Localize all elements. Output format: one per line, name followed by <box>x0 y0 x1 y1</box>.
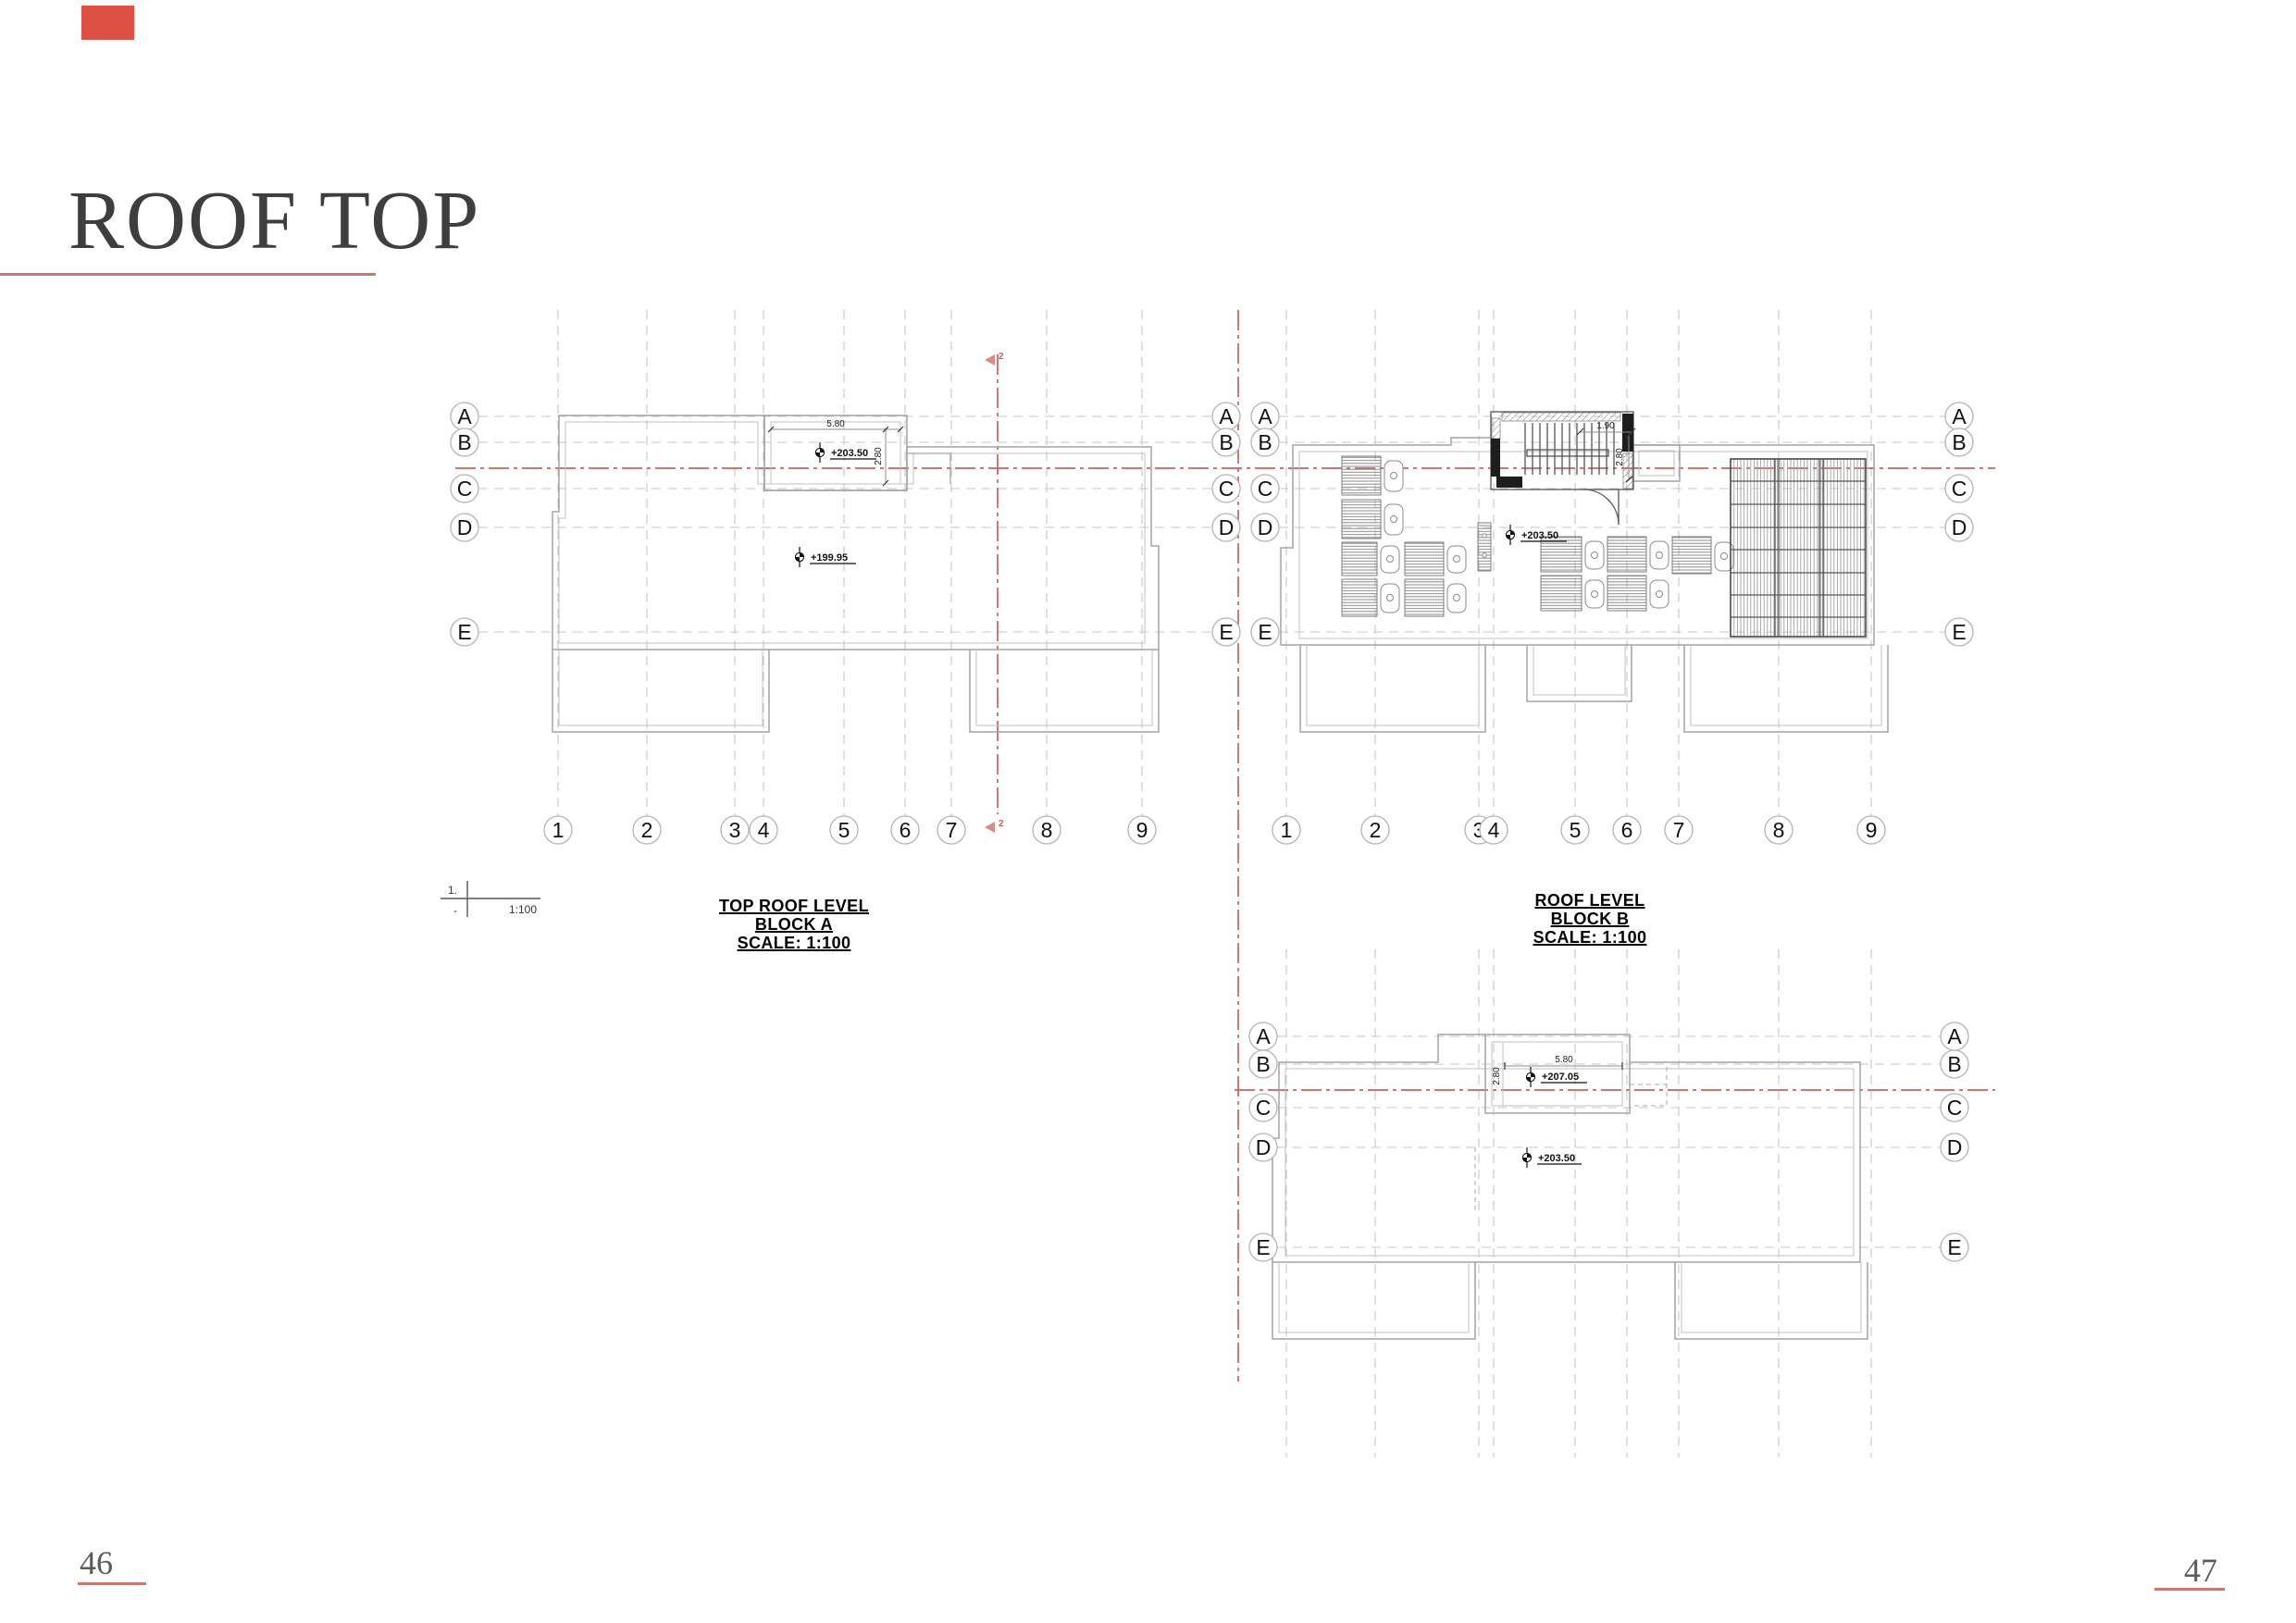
svg-text:6: 6 <box>900 818 912 842</box>
grid-bubble: 4 <box>750 816 777 844</box>
page-number-right: 47 <box>2184 1551 2217 1590</box>
dim-penthouse-depth-c: 2.80 <box>1492 1067 1502 1085</box>
grid-bubbles-block-a-right: A B C D E <box>1212 403 1240 646</box>
grid-bubble: C <box>1941 1094 1968 1121</box>
svg-text:7: 7 <box>1673 818 1685 842</box>
svg-text:E: E <box>1947 1235 1961 1259</box>
scale-denominator: - <box>453 904 457 917</box>
svg-text:A: A <box>1947 1024 1962 1048</box>
svg-text:E: E <box>1258 620 1272 644</box>
plan-a-title-line2: BLOCK A <box>719 915 869 934</box>
svg-text:+199.95: +199.95 <box>811 552 848 564</box>
grid-bubble: D <box>1249 1134 1277 1161</box>
svg-text:B: B <box>1952 430 1966 454</box>
grid-bubble: E <box>1941 1233 1968 1261</box>
svg-text:2: 2 <box>1370 818 1382 842</box>
grid-bubble: C <box>451 475 478 502</box>
door-swing <box>1583 489 1619 525</box>
grid-bubble: A <box>1212 403 1240 430</box>
grid-bubble: A <box>1251 403 1279 430</box>
grid-bubbles-block-c-right: A B C D E <box>1941 1022 1968 1261</box>
svg-text:C: C <box>1947 1096 1963 1120</box>
grid-bubble: C <box>1251 475 1279 502</box>
grid-bubble: D <box>451 514 478 541</box>
svg-text:E: E <box>1952 620 1966 644</box>
dim-penthouse-width-c: 5.80 <box>1555 1055 1573 1065</box>
svg-text:9: 9 <box>1136 818 1148 842</box>
svg-text:7: 7 <box>946 818 958 842</box>
svg-text:6: 6 <box>1621 818 1633 842</box>
grid-bubble: A <box>1945 403 1973 430</box>
svg-text:E: E <box>457 620 471 644</box>
svg-text:2: 2 <box>999 352 1004 362</box>
svg-text:2: 2 <box>999 819 1004 829</box>
svg-text:+203.50: +203.50 <box>1538 1153 1575 1164</box>
grid-bubble: D <box>1941 1134 1968 1161</box>
grid-bubble: E <box>1249 1233 1277 1261</box>
level-marker-penthouse-a: +203.50 <box>815 442 876 463</box>
grid-bubble: A <box>1941 1022 1968 1050</box>
grid-bubble: 7 <box>1665 816 1693 844</box>
section-marker-top: 2 <box>985 352 1004 365</box>
roof-outline-block-a: 5.80 2.80 +203.50 +199.95 <box>552 415 1159 732</box>
grid-bubble: E <box>1251 618 1279 646</box>
svg-text:D: D <box>1219 515 1235 539</box>
svg-text:B: B <box>1947 1052 1961 1076</box>
svg-text:B: B <box>457 430 471 454</box>
roof-ladder <box>1478 523 1491 571</box>
roof-outline-block-b: 1.90 2.80 <box>1281 412 1888 732</box>
level-marker-roof-c: +203.50 <box>1522 1147 1582 1168</box>
svg-text:C: C <box>457 477 473 501</box>
grid-bubble: B <box>1945 428 1973 456</box>
grid-bubble: 4 <box>1480 816 1508 844</box>
plan-b-title-line2: BLOCK B <box>1533 910 1647 928</box>
svg-text:D: D <box>457 515 473 539</box>
svg-text:A: A <box>457 404 472 428</box>
grid-bubble: 8 <box>1033 816 1061 844</box>
grid-bubble: 6 <box>1613 816 1641 844</box>
svg-text:D: D <box>1947 1135 1963 1159</box>
svg-text:9: 9 <box>1866 818 1878 842</box>
svg-text:B: B <box>1256 1052 1270 1076</box>
svg-text:B: B <box>1258 430 1272 454</box>
svg-text:1: 1 <box>552 818 565 842</box>
dim-penthouse-depth-a: 2.80 <box>874 447 884 465</box>
svg-text:5: 5 <box>838 818 850 842</box>
svg-text:8: 8 <box>1773 818 1785 842</box>
svg-text:1: 1 <box>1281 818 1293 842</box>
svg-text:A: A <box>1952 404 1967 428</box>
grid-bubble: E <box>1212 618 1240 646</box>
svg-text:A: A <box>1258 404 1272 428</box>
grid-bubble: 2 <box>1361 816 1389 844</box>
scale-ratio: 1:100 <box>509 903 537 916</box>
grid-bubble: 1 <box>1272 816 1300 844</box>
svg-text:3: 3 <box>729 818 741 842</box>
svg-text:2: 2 <box>641 818 653 842</box>
plan-b-title-line3: SCALE: 1:100 <box>1533 928 1647 947</box>
grid-bubble: 5 <box>1561 816 1589 844</box>
grid-bubble: C <box>1249 1094 1277 1121</box>
svg-text:+203.50: +203.50 <box>1521 530 1558 541</box>
grid-bubble: B <box>1212 428 1240 456</box>
grid-bubble: C <box>1945 475 1973 502</box>
svg-text:C: C <box>1256 1096 1272 1120</box>
column-bubbles-block-b: 1 2 3 4 5 6 7 8 9 <box>1272 816 1885 844</box>
level-marker-roof-a: +199.95 <box>795 547 856 567</box>
column-bubbles-block-a: 1 2 3 4 5 6 7 8 9 <box>544 816 1156 844</box>
plan-b-title-line1: ROOF LEVEL <box>1533 891 1647 910</box>
svg-text:+203.50: +203.50 <box>831 448 868 459</box>
grid-bubble: 3 <box>721 816 749 844</box>
svg-text:A: A <box>1219 404 1234 428</box>
solar-panel-array <box>1731 459 1866 637</box>
svg-text:D: D <box>1952 515 1967 539</box>
svg-text:5: 5 <box>1570 818 1582 842</box>
drawing-canvas: 2 2 5.80 2.80 +203.50 <box>0 0 2296 1623</box>
grid-bubbles-block-b-right: A B C D E <box>1945 403 1973 646</box>
plan-b-title: ROOF LEVEL BLOCK B SCALE: 1:100 <box>1533 891 1647 947</box>
scale-numerator: 1. <box>448 884 457 897</box>
grid-bubble: D <box>1945 514 1973 541</box>
plan-a-title: TOP ROOF LEVEL BLOCK A SCALE: 1:100 <box>719 897 869 952</box>
grid-bubbles-block-a-left: A B C D E <box>451 403 478 646</box>
grid-bubble: B <box>1249 1050 1277 1078</box>
grid-bubble: A <box>451 403 478 430</box>
grid-bubble: D <box>1251 514 1279 541</box>
grid-bubble: 5 <box>830 816 858 844</box>
svg-text:E: E <box>1256 1235 1270 1259</box>
grid-bubble: 9 <box>1857 816 1885 844</box>
grid-bubble: 2 <box>633 816 661 844</box>
grid-bubble: 6 <box>891 816 919 844</box>
section-marker-bottom: 2 <box>985 819 1004 833</box>
portfolio-page: ROOF TOP <box>0 0 2296 1623</box>
svg-text:C: C <box>1219 477 1235 501</box>
grid-bubble: B <box>1251 428 1279 456</box>
svg-text:B: B <box>1219 430 1233 454</box>
grid-bubble: A <box>1249 1022 1277 1050</box>
grid-bubbles-block-b-left: A B C D E <box>1251 403 1279 646</box>
dim-penthouse-width-a: 5.80 <box>826 419 845 429</box>
svg-text:+207.05: +207.05 <box>1542 1072 1579 1083</box>
svg-text:C: C <box>1258 477 1273 501</box>
plan-a-title-line1: TOP ROOF LEVEL <box>719 897 869 915</box>
grid-bubble: D <box>1212 514 1240 541</box>
page-number-left-underline <box>78 1582 146 1585</box>
grid-bubble: B <box>1941 1050 1968 1078</box>
svg-text:A: A <box>1256 1024 1271 1048</box>
svg-text:4: 4 <box>1488 818 1500 842</box>
svg-text:8: 8 <box>1041 818 1053 842</box>
page-number-left: 46 <box>80 1543 113 1582</box>
svg-text:C: C <box>1952 477 1967 501</box>
grid-bubble: 9 <box>1128 816 1156 844</box>
grid-bubble: E <box>451 618 478 646</box>
plan-a-title-line3: SCALE: 1:100 <box>719 934 869 952</box>
svg-text:4: 4 <box>758 818 770 842</box>
dim-stair-width: 1.90 <box>1596 421 1615 431</box>
level-marker-penthouse-c: +207.05 <box>1526 1067 1587 1087</box>
grid-bubble: C <box>1212 475 1240 502</box>
dim-stair-depth: 2.80 <box>1615 448 1625 466</box>
svg-text:E: E <box>1219 620 1233 644</box>
page-number-right-underline <box>2154 1588 2225 1591</box>
scale-bar: 1. - 1:100 <box>441 881 540 917</box>
grid-bubble: E <box>1945 618 1973 646</box>
grid-bubble: 1 <box>544 816 572 844</box>
grid-bubble: B <box>451 428 478 456</box>
grid-lines <box>478 310 1945 1457</box>
grid-bubble: 7 <box>937 816 965 844</box>
svg-text:D: D <box>1258 515 1273 539</box>
grid-bubble: 8 <box>1765 816 1793 844</box>
svg-text:D: D <box>1256 1135 1272 1159</box>
